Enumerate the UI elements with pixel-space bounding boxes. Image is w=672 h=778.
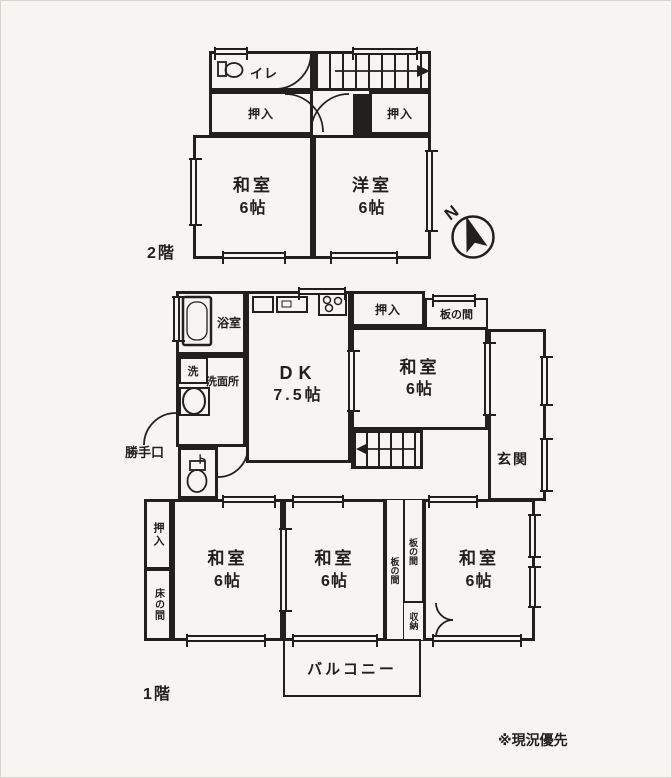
room-washitsu-se: 和室 6帖	[423, 499, 535, 641]
room-name: DK	[280, 360, 318, 386]
closet-oshiire-1f-top: 押入	[351, 291, 425, 327]
room-name: 和室	[233, 174, 273, 199]
room-name: 洋室	[352, 174, 392, 199]
laundry-label: 洗	[188, 363, 200, 379]
window	[173, 297, 180, 341]
room-size: 7.5帖	[273, 386, 323, 407]
itanoma-label: 板の間	[389, 557, 402, 584]
room-size: 6帖	[214, 572, 241, 593]
washbasin-box	[179, 387, 210, 416]
room-name: 和室	[400, 356, 440, 381]
window	[331, 252, 397, 259]
dk-label-group: DK 7.5帖	[249, 360, 348, 407]
toilet-label: ト	[196, 451, 208, 467]
balcony-label: バルコニー	[307, 658, 397, 679]
window	[541, 357, 548, 405]
window	[353, 48, 417, 55]
stairs-2f	[313, 51, 431, 91]
compass-n: N	[441, 202, 462, 225]
storage-label: 収納	[408, 612, 421, 630]
room-bathroom: 浴室	[176, 291, 246, 355]
room-yoshitsu-2f: 洋室 6帖	[313, 135, 431, 259]
toilet-label: イレ	[250, 63, 278, 82]
back-door-label: 勝手口	[125, 442, 164, 461]
room-name: 和室	[315, 547, 355, 572]
room-toilet-1f: ト	[178, 447, 218, 499]
sliding-partition	[280, 529, 287, 611]
room-washitsu-s: 和室 6帖	[283, 499, 386, 641]
room-washitsu-2f: 和室 6帖	[193, 135, 313, 259]
floor1-label: 1階	[143, 680, 172, 704]
room-opening	[293, 496, 343, 503]
room-size: 6帖	[321, 572, 348, 593]
room-size: 6帖	[240, 199, 267, 220]
window	[190, 159, 197, 225]
room-size: 6帖	[406, 380, 433, 401]
room-size: 6帖	[466, 572, 493, 593]
closet-label: 押入	[375, 301, 401, 318]
sliding-partition	[348, 351, 355, 411]
room-genkan: 玄関	[488, 329, 546, 501]
compass-icon: N	[441, 202, 494, 258]
room-opening	[429, 496, 477, 503]
wall-stub-2f	[353, 94, 369, 135]
window	[426, 151, 433, 231]
floorplan-canvas: 和室 6帖 洋室 6帖 イレ 押入 押入 2階 浴室 洗面所 洗 ト 勝手口 D…	[0, 0, 672, 778]
washroom-label: 洗面所	[206, 373, 239, 389]
closet-oshiire-2f-right: 押入	[369, 91, 431, 135]
closet-oshiire-sw: 押入	[144, 499, 172, 570]
sliding-partition	[484, 343, 491, 415]
note-genkyo-yusen: ※現況優先	[498, 730, 568, 750]
bathroom-label: 浴室	[217, 314, 241, 331]
itanoma-strip-2: 板の間	[404, 499, 423, 603]
room-washitsu-sw: 和室 6帖	[172, 499, 283, 641]
stairs-1f	[351, 430, 423, 469]
laundry-box: 洗	[179, 357, 208, 384]
genkan-label: 玄関	[497, 449, 529, 469]
room-dk: DK 7.5帖	[246, 291, 351, 463]
itanoma-top: 板の間	[425, 298, 488, 329]
room-name: 和室	[208, 547, 248, 572]
room-washitsu-ne: 和室 6帖	[351, 327, 488, 430]
floor2-label: 2階	[147, 239, 176, 263]
window	[215, 48, 247, 55]
room-size: 6帖	[359, 199, 386, 220]
window	[187, 635, 265, 642]
balcony: バルコニー	[283, 639, 421, 697]
tokonoma-label: 床の間	[151, 588, 166, 621]
room-name: 和室	[459, 547, 499, 572]
window	[223, 252, 285, 259]
tokonoma-alcove: 床の間	[144, 568, 172, 641]
entrance-door	[541, 439, 548, 491]
room-opening	[223, 496, 275, 503]
window	[433, 635, 521, 642]
closet-label: 押入	[248, 105, 274, 122]
window	[299, 288, 345, 295]
itanoma-label: 板の間	[440, 306, 473, 322]
balcony-door	[293, 635, 377, 642]
room-toilet-2f: イレ	[209, 51, 313, 91]
itanoma-label: 板の間	[407, 538, 420, 565]
itanoma-strip-1: 板の間	[386, 499, 404, 641]
window	[529, 567, 536, 607]
window	[529, 515, 536, 557]
closet-label: 押入	[387, 105, 413, 122]
closet-oshiire-2f-left: 押入	[209, 91, 313, 135]
storage-shuunou: 収納	[403, 601, 425, 641]
closet-label: 押入	[150, 522, 166, 548]
window	[433, 295, 475, 302]
